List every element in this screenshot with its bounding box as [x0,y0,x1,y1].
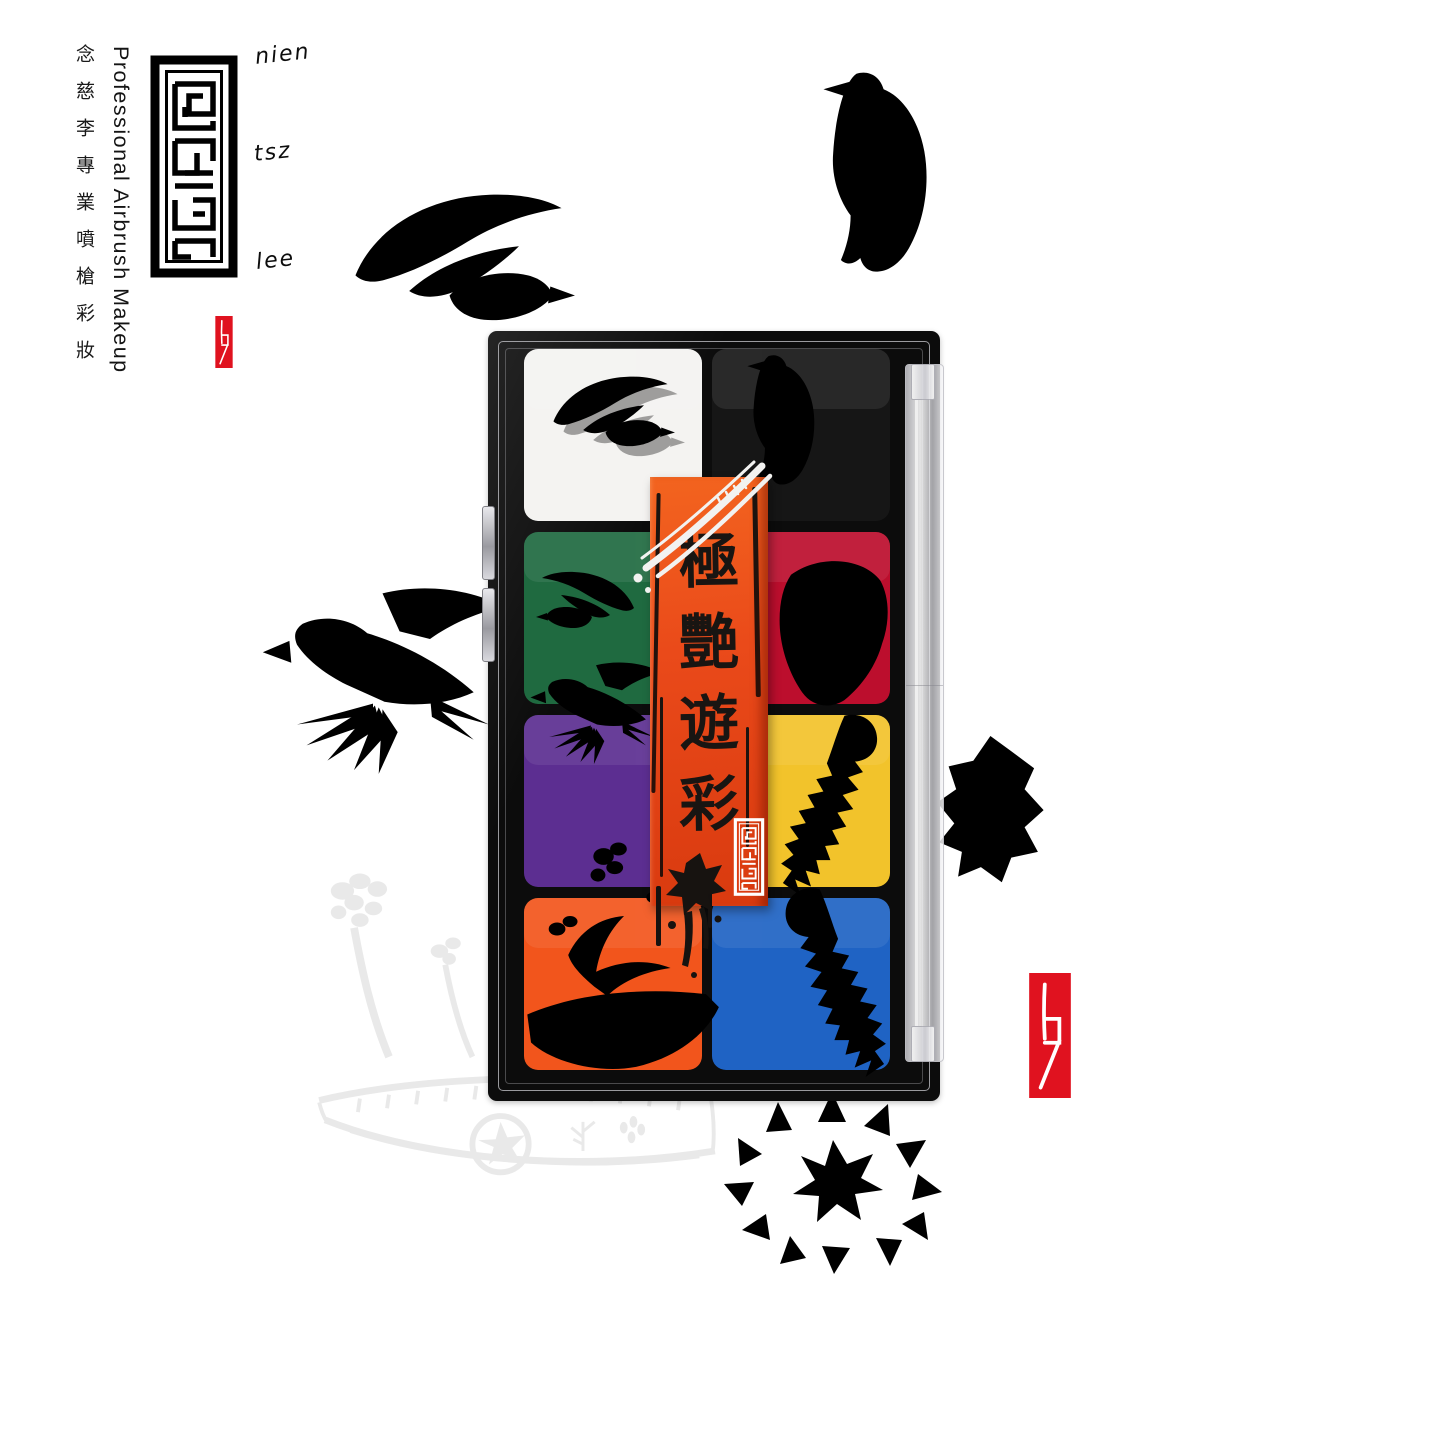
artist-seal-right [1029,973,1071,1098]
bg-chameleon-motif [937,670,1043,883]
acrylic-rod [905,364,944,1062]
bg-pheasant-motif [810,73,927,321]
brand-english-vertical: Professional Airbrush Makeup [108,46,133,374]
rod-highlight [915,379,918,1047]
artist-seal-left [215,316,233,368]
signature-tsz: tsz [253,138,293,167]
hinge-bottom [482,588,495,662]
ink-splat [648,845,738,980]
bg-sun-wheel-motif [724,1092,942,1274]
rod-seam [906,685,943,686]
rod-bottom-tab [911,1026,935,1062]
brand-chinese-vertical: 念慈李專業噴槍彩妝 [70,44,97,377]
banner-char-3: 遊 [649,688,768,760]
rod-top-tab [911,364,935,400]
pheasant-tail-streaks [600,440,800,630]
signature-lee: lee [255,246,297,275]
maze-seal-logo [150,55,238,278]
bg-dove-motif [263,588,504,774]
poster: .mgray .f{fill:#e9e9e9}.mgray .s{stroke:… [0,0,1445,1445]
hinge-top [482,506,495,580]
